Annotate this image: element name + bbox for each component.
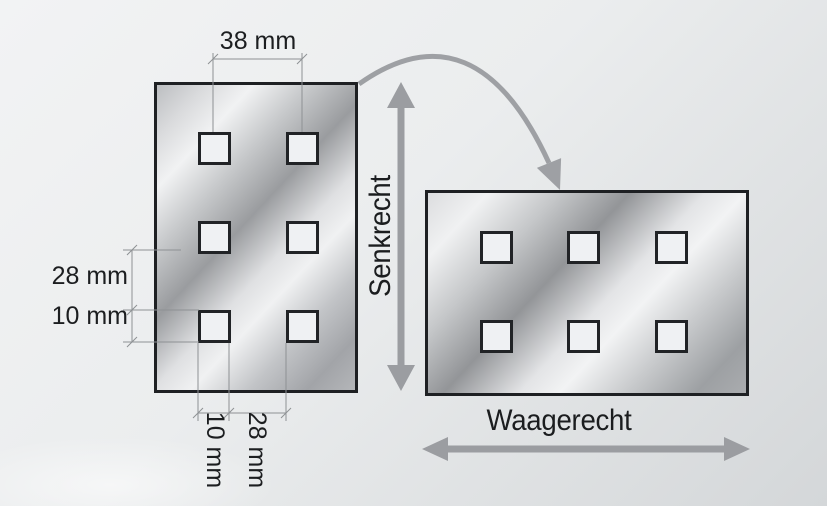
dimension-label-10mm-left: 10 mm [34, 303, 128, 329]
dimension-left-28-10mm [123, 245, 199, 347]
dimension-top-38mm [208, 53, 307, 132]
dimension-label-10mm-bottom: 10 mm [202, 405, 228, 495]
axis-label-waagerecht: Waagerecht [476, 404, 642, 438]
axis-label-senkrecht: Senkrecht [364, 153, 398, 319]
dimension-label-28mm-bottom: 28 mm [244, 405, 270, 495]
diagram-canvas: 38 mm 28 mm 10 mm 10 mm 28 mm Senkrecht … [0, 0, 827, 506]
horizontal-extent-arrow-icon [422, 437, 750, 461]
dimension-label-38mm: 38 mm [213, 28, 303, 54]
dimension-label-28mm-left: 28 mm [34, 263, 128, 289]
linework-overlay [0, 0, 827, 506]
